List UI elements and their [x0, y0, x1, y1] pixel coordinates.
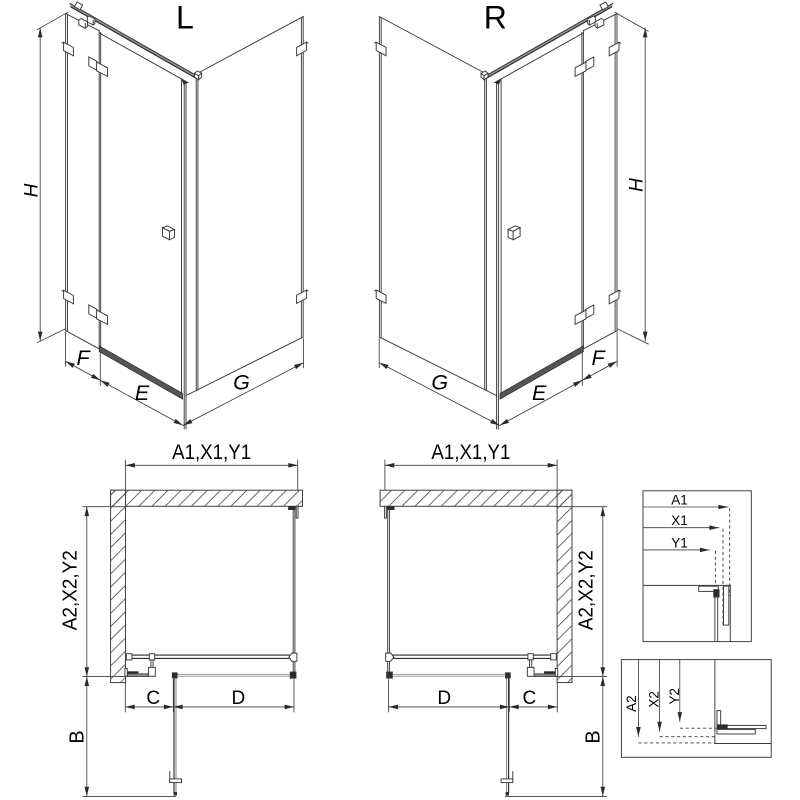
svg-text:X1: X1	[671, 513, 688, 528]
svg-text:B: B	[66, 730, 88, 743]
svg-text:E: E	[135, 381, 150, 405]
svg-text:E: E	[532, 381, 547, 405]
svg-text:D: D	[437, 688, 451, 709]
svg-text:L: L	[176, 0, 194, 35]
svg-text:Y2: Y2	[667, 688, 682, 705]
svg-text:F: F	[77, 346, 92, 370]
svg-text:F: F	[592, 346, 607, 370]
svg-text:H: H	[21, 183, 42, 197]
svg-text:G: G	[431, 371, 448, 395]
svg-text:C: C	[523, 688, 537, 709]
svg-text:B: B	[582, 730, 604, 743]
svg-text:A1,X1,Y1: A1,X1,Y1	[431, 441, 510, 464]
svg-text:R: R	[484, 0, 507, 35]
svg-text:A2,X2,Y2: A2,X2,Y2	[575, 550, 597, 630]
svg-text:A2: A2	[624, 695, 639, 712]
svg-text:A1,X1,Y1: A1,X1,Y1	[172, 441, 251, 464]
svg-text:C: C	[146, 688, 160, 709]
svg-text:A2,X2,Y2: A2,X2,Y2	[59, 550, 81, 630]
svg-text:G: G	[233, 371, 250, 395]
svg-text:X2: X2	[647, 691, 662, 708]
svg-text:Y1: Y1	[671, 535, 688, 550]
svg-text:A1: A1	[671, 492, 688, 507]
svg-text:H: H	[626, 178, 647, 192]
svg-text:D: D	[232, 688, 246, 709]
